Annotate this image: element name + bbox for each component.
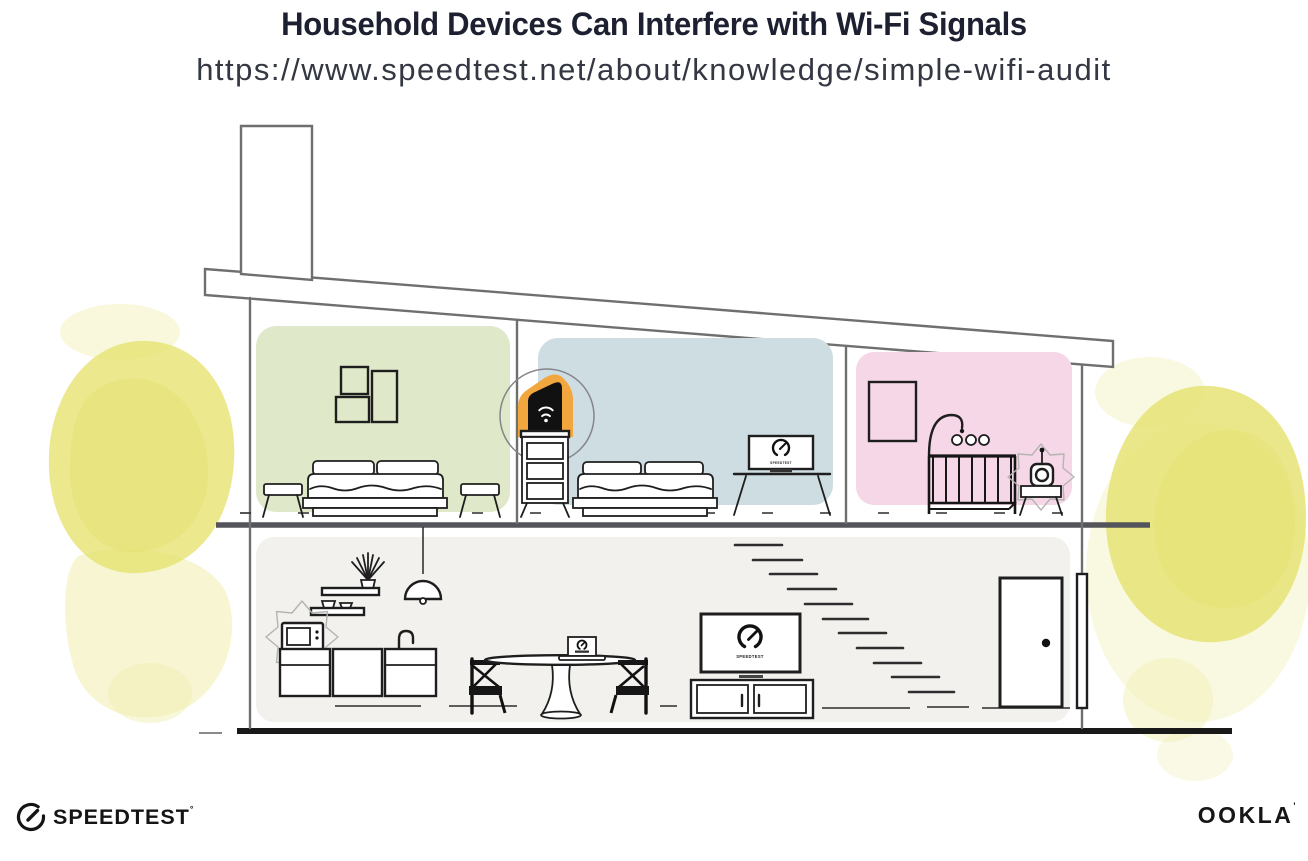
bed xyxy=(573,462,717,516)
tree-watercolor-left xyxy=(49,304,235,723)
tv-stand xyxy=(739,675,763,678)
svg-text:SPEEDTEST: SPEEDTEST xyxy=(770,461,792,465)
chimney xyxy=(241,126,312,280)
tree-watercolor-right xyxy=(1086,357,1308,781)
shelf-upper xyxy=(322,588,379,595)
door-knob xyxy=(1042,639,1050,647)
house-cutaway-illustration: SPEEDTEST xyxy=(0,0,1308,861)
monitor-speedtest-screen: SPEEDTEST xyxy=(749,436,813,472)
ookla-logo: OOKLA' xyxy=(1198,802,1298,829)
speedtest-wordmark: SPEEDTEST° xyxy=(53,805,194,830)
tv-speedtest-screen: SPEEDTEST xyxy=(701,614,800,678)
shelf-lower xyxy=(311,608,364,615)
front-door xyxy=(1000,578,1062,707)
wifi-router xyxy=(518,375,573,438)
media-console xyxy=(691,680,813,718)
wall-pillar xyxy=(1077,574,1087,708)
speedtest-gauge-icon xyxy=(16,802,46,832)
svg-text:SPEEDTEST: SPEEDTEST xyxy=(736,654,764,659)
entry xyxy=(1000,574,1087,708)
speedtest-logo: SPEEDTEST° xyxy=(16,800,194,834)
tv-area: SPEEDTEST xyxy=(691,614,813,718)
infographic-page: Household Devices Can Interfere with Wi-… xyxy=(0,0,1308,861)
microwave xyxy=(282,623,323,650)
